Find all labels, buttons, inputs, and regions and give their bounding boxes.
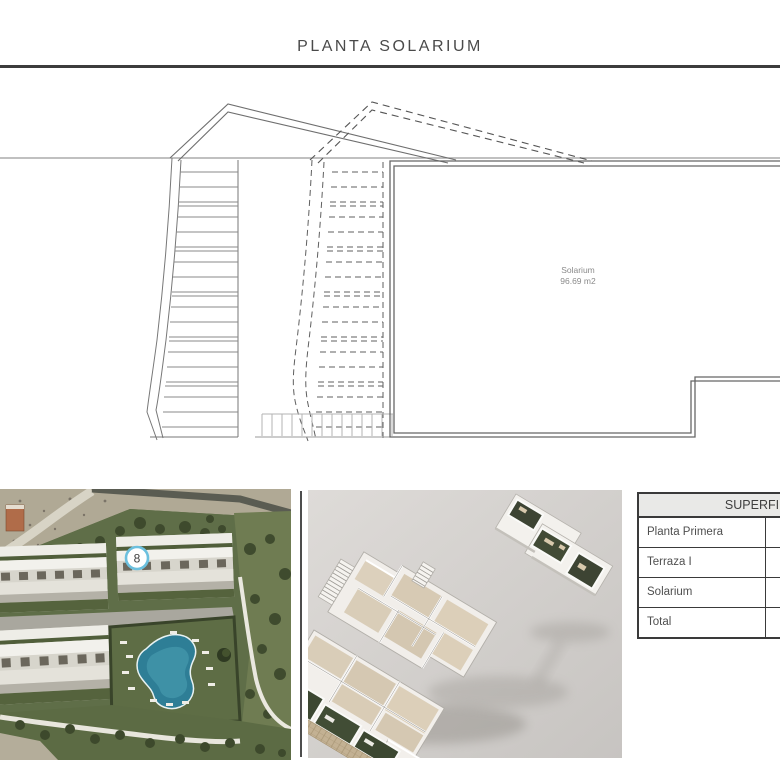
row-label: Total <box>639 608 765 637</box>
row-label: Planta Primera <box>639 518 765 547</box>
superficies-table: SUPERFI Planta Primera Terraza I Solariu… <box>637 492 780 639</box>
stair-treads <box>255 414 393 437</box>
building-block-upper-left <box>0 543 108 613</box>
terraced-structure-solid <box>147 158 238 440</box>
aerial-photo-svg: 8 <box>0 489 291 760</box>
solarium-floor-plan: Solarium 96.69 m2 <box>0 0 780 470</box>
dashed-roof-outline <box>310 102 592 163</box>
table-row-planta-primera: Planta Primera <box>639 518 780 548</box>
terraced-structure-dashed <box>293 160 383 441</box>
aerial-site-photo: 8 <box>0 489 291 760</box>
row-label: Terraza I <box>639 548 765 577</box>
table-row-solarium: Solarium <box>639 578 780 608</box>
row-value-cell <box>765 548 780 577</box>
orange-building-roof <box>6 505 24 509</box>
unit-marker-label: 8 <box>134 552 141 566</box>
solid-roof-outline <box>170 104 456 163</box>
row-value-cell <box>765 578 780 607</box>
exploded-view-svg <box>308 490 622 758</box>
exploded-axonometric-view <box>308 490 622 758</box>
room-name-text: Solarium <box>561 265 595 275</box>
superficies-table-header: SUPERFI <box>639 494 780 518</box>
row-label: Solarium <box>639 578 765 607</box>
floor-plan-svg: Solarium 96.69 m2 <box>0 0 780 470</box>
solarium-enclosure-outline <box>390 161 780 437</box>
solarium-room-label: Solarium 96.69 m2 <box>560 265 596 286</box>
plan-sheet: PLANTA SOLARIUM <box>0 0 780 780</box>
building-block-lower-left <box>0 625 112 705</box>
row-value-cell <box>765 518 780 547</box>
row-value-cell <box>765 608 780 637</box>
unit-marker-badge: 8 <box>126 547 148 569</box>
table-row-total: Total <box>639 608 780 637</box>
panel-divider-line <box>300 491 302 757</box>
room-area-text: 96.69 m2 <box>560 276 596 286</box>
table-row-terraza: Terraza I <box>639 548 780 578</box>
